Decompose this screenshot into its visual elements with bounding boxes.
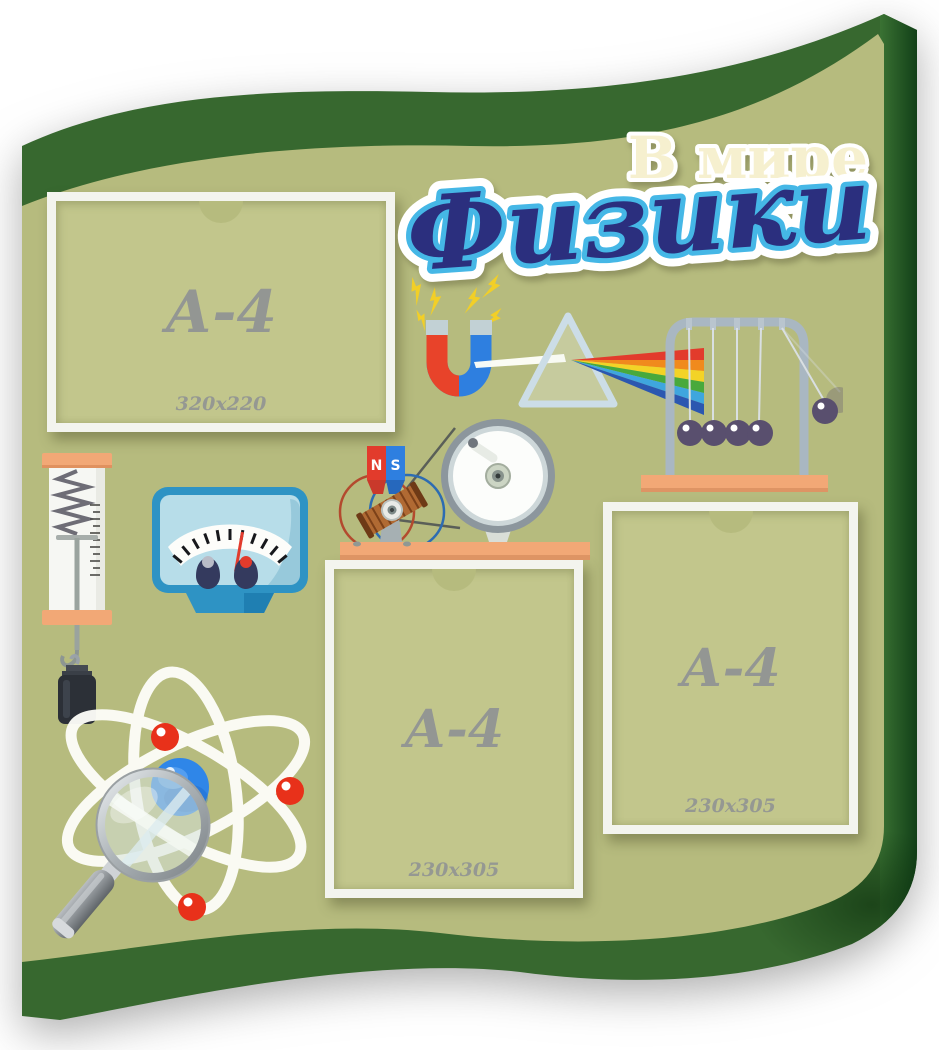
balls — [677, 398, 838, 446]
crank-handle — [468, 438, 478, 448]
magnet-s-label: S — [390, 458, 400, 474]
voltmeter-icon — [148, 483, 312, 619]
newtons-cradle-icon — [628, 296, 843, 500]
title-line2-group: Физики Физики Физики — [403, 143, 875, 295]
pocket-notch — [432, 569, 476, 591]
pocket-notch — [709, 511, 753, 533]
pocket-label: А-4 — [404, 699, 504, 760]
wooden-base — [340, 542, 590, 557]
magnet-n-label: N — [371, 458, 383, 474]
flywheel — [441, 419, 555, 533]
pocket-notch — [199, 201, 243, 223]
pocket-a4-portrait-center: А-4 230x305 — [325, 560, 583, 898]
pocket-size-label: 230x305 — [334, 859, 574, 881]
pocket-a4-portrait-right: А-4 230x305 — [603, 502, 858, 834]
pocket-label: А-4 — [680, 638, 780, 699]
pocket-label: А-4 — [165, 278, 277, 346]
pocket-a4-landscape: А-4 320x220 — [47, 192, 395, 432]
pocket-size-label: 230x305 — [612, 795, 849, 817]
physics-stand-poster: А-4 320x220 А-4 230x305 А-4 230x305 — [0, 0, 939, 1050]
belt — [390, 519, 460, 528]
title-line2: Физики — [403, 143, 875, 295]
atom-magnifier-icon — [28, 643, 330, 955]
title-sticker: В мире Физики Физики Физики — [370, 92, 930, 292]
hand-generator-icon: N S — [333, 402, 601, 570]
